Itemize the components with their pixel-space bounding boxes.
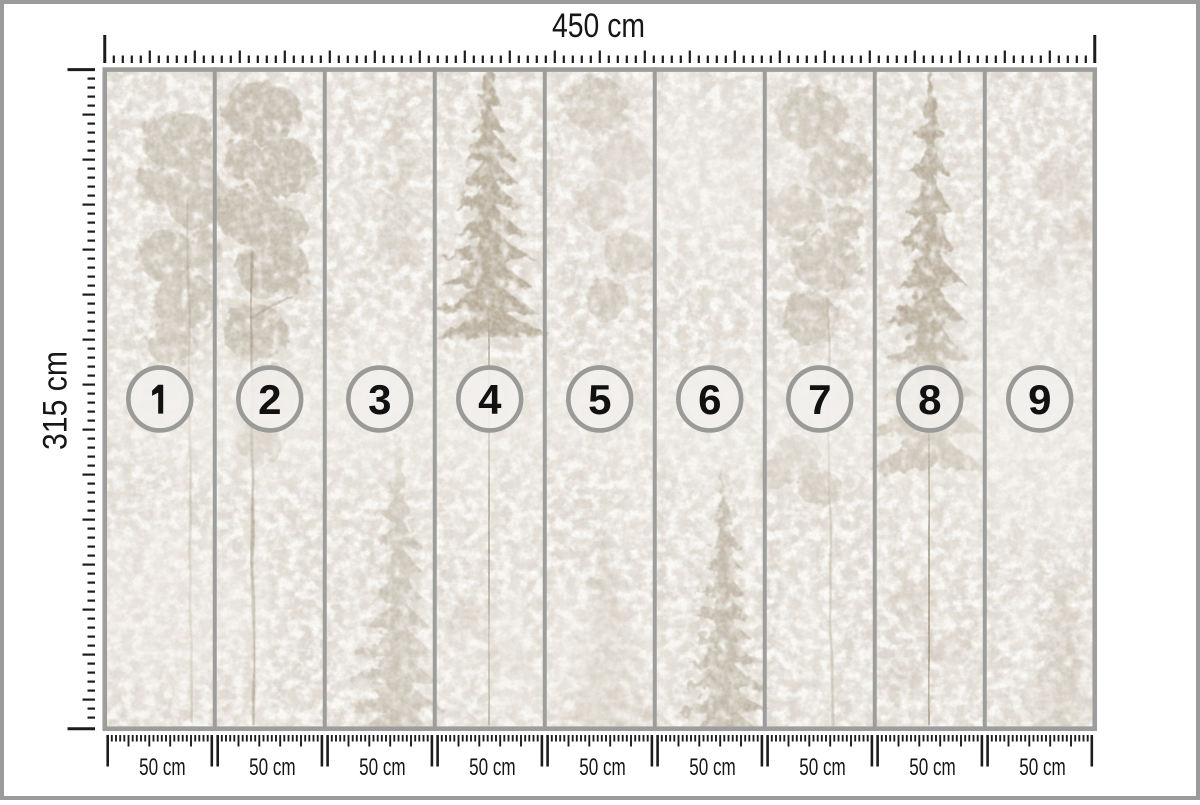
svg-text:50 cm: 50 cm [909,754,956,781]
svg-text:50 cm: 50 cm [1019,754,1066,781]
svg-text:9: 9 [1028,376,1051,423]
svg-text:50 cm: 50 cm [139,754,186,781]
svg-text:3: 3 [368,376,391,423]
svg-text:5: 5 [588,376,611,423]
svg-text:6: 6 [698,376,721,423]
svg-text:315 cm: 315 cm [37,351,75,450]
svg-text:50 cm: 50 cm [689,754,736,781]
svg-text:4: 4 [478,376,502,423]
svg-text:8: 8 [918,376,941,423]
svg-text:50 cm: 50 cm [799,754,846,781]
svg-text:50 cm: 50 cm [579,754,626,781]
svg-text:450 cm: 450 cm [552,7,645,45]
svg-text:7: 7 [808,376,831,423]
svg-text:2: 2 [258,376,281,423]
svg-text:50 cm: 50 cm [249,754,296,781]
svg-text:50 cm: 50 cm [469,754,516,781]
svg-text:50 cm: 50 cm [359,754,406,781]
